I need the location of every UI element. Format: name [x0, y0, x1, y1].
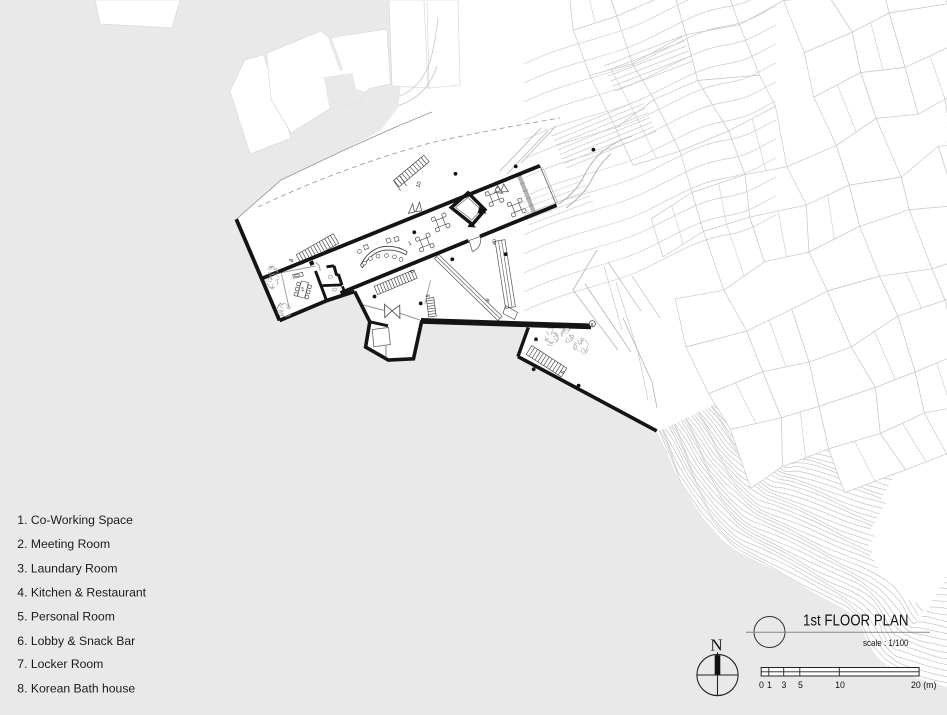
svg-text:5: 5 — [426, 294, 432, 298]
svg-text:6. Lobby & Snack Bar: 6. Lobby & Snack Bar — [17, 634, 135, 648]
svg-text:3. Laundary Room: 3. Laundary Room — [17, 561, 117, 575]
svg-text:7. Locker Room: 7. Locker Room — [17, 657, 103, 671]
svg-text:1. Co-Working Space: 1. Co-Working Space — [17, 513, 133, 527]
svg-text:scale : 1/100: scale : 1/100 — [863, 638, 909, 649]
svg-text:5: 5 — [798, 680, 803, 690]
svg-text:1st FLOOR PLAN: 1st FLOOR PLAN — [803, 613, 909, 630]
svg-text:N: N — [710, 636, 722, 655]
svg-text:8: 8 — [591, 322, 594, 327]
svg-text:10: 10 — [835, 680, 845, 690]
svg-text:3: 3 — [782, 680, 787, 690]
svg-text:5. Personal Room: 5. Personal Room — [17, 610, 115, 624]
svg-text:0: 0 — [759, 680, 764, 690]
svg-text:40: 40 — [492, 239, 499, 246]
svg-text:2. Meeting Room: 2. Meeting Room — [17, 537, 110, 551]
svg-text:4. Kitchen & Restaurant: 4. Kitchen & Restaurant — [17, 586, 146, 600]
svg-text:20 (m): 20 (m) — [911, 680, 936, 690]
svg-text:8. Korean Bath house: 8. Korean Bath house — [17, 682, 135, 696]
svg-text:1: 1 — [767, 680, 772, 690]
